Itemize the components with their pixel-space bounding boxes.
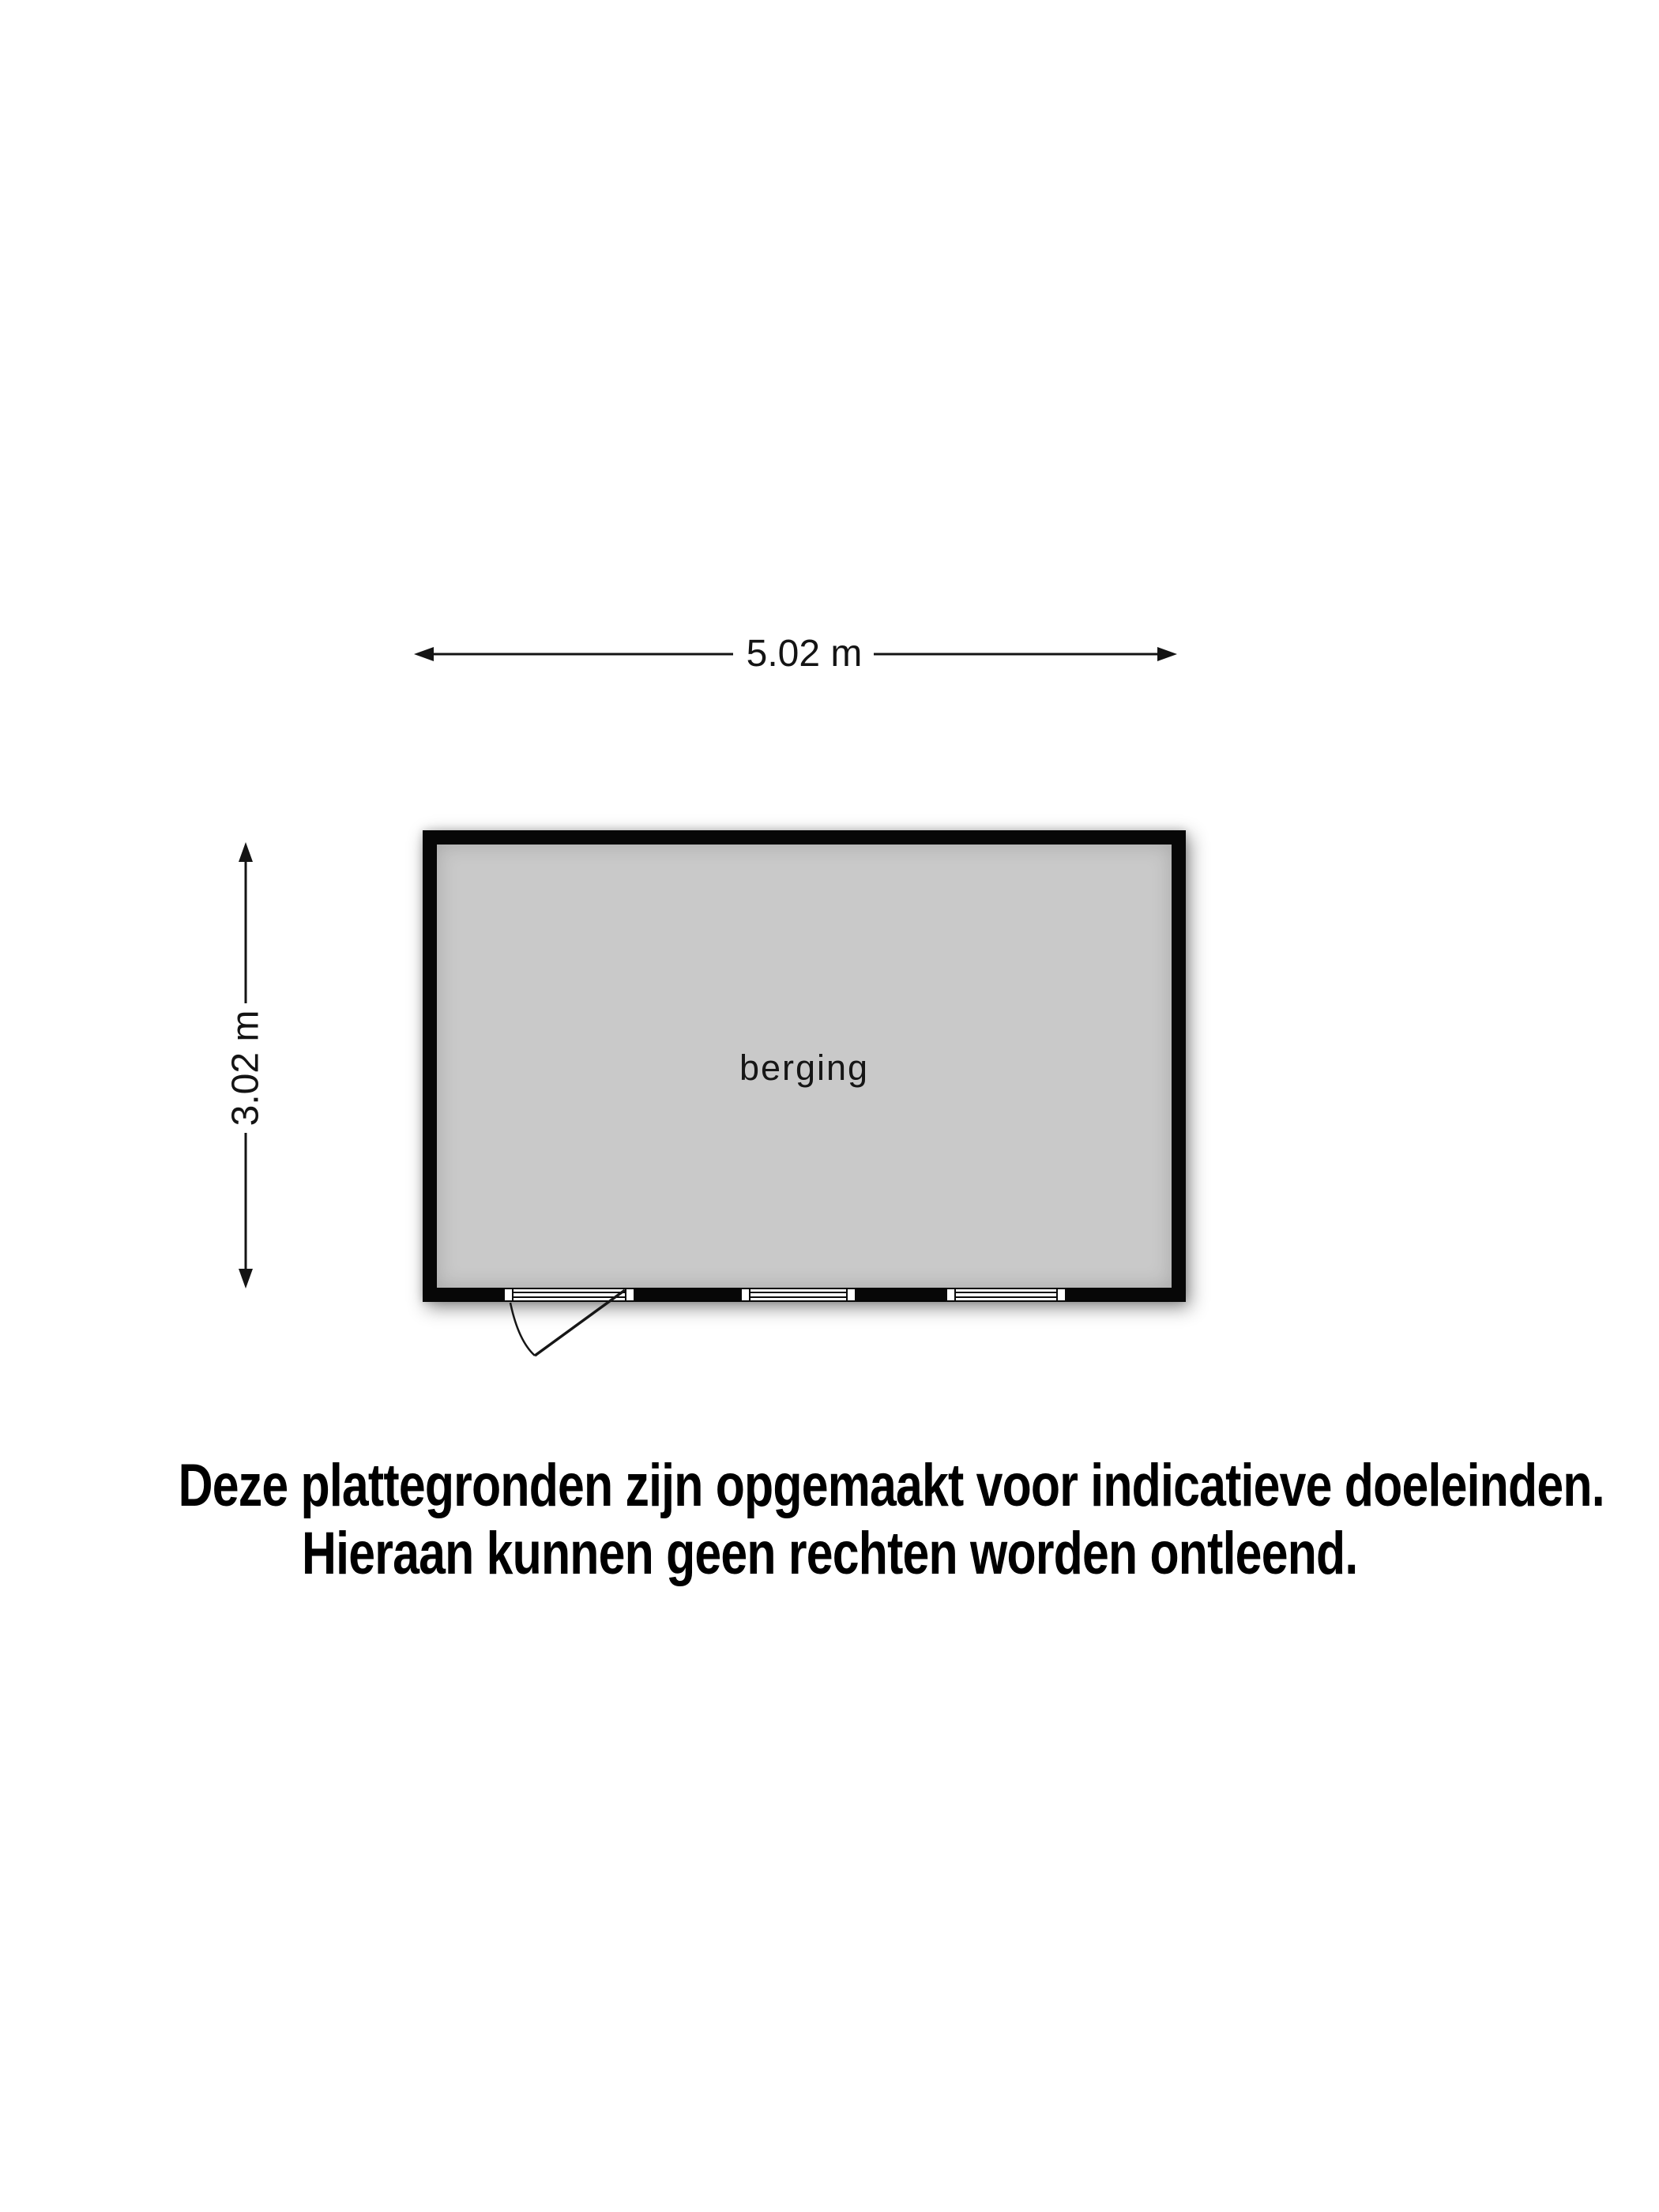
window-frame-cap (740, 1288, 750, 1302)
room-label: berging (739, 1048, 869, 1089)
window-frame-cap (946, 1288, 956, 1302)
window-frame-cap (1056, 1288, 1066, 1302)
door-frame-cap-left (503, 1288, 513, 1302)
disclaimer: Deze plattegronden zijn opgemaakt voor i… (0, 1452, 1659, 1588)
door-glass-panel (513, 1288, 625, 1302)
disclaimer-line-2: Hieraan kunnen geen rechten worden ontle… (302, 1520, 1357, 1588)
arrowhead-left (414, 647, 434, 661)
window-2 (946, 1288, 1066, 1302)
floor-plan-page: 5.02 m 3.02 m berging (0, 0, 1659, 2212)
arrowhead-right (1157, 647, 1177, 661)
window-glass (750, 1288, 846, 1302)
dimension-height-label: 3.02 m (224, 1010, 268, 1127)
dimension-width-label: 5.02 m (686, 630, 923, 678)
window-1 (740, 1288, 856, 1302)
door-frame-cap-right (625, 1288, 635, 1302)
window-frame-cap (846, 1288, 856, 1302)
room-berging: berging (423, 830, 1186, 1302)
disclaimer-line-1: Deze plattegronden zijn opgemaakt voor i… (179, 1452, 1604, 1520)
door-swing-arc (510, 1303, 535, 1356)
arrowhead-up (239, 842, 253, 862)
arrowhead-down (239, 1269, 253, 1288)
door-opening (503, 1288, 635, 1302)
window-glass (956, 1288, 1056, 1302)
